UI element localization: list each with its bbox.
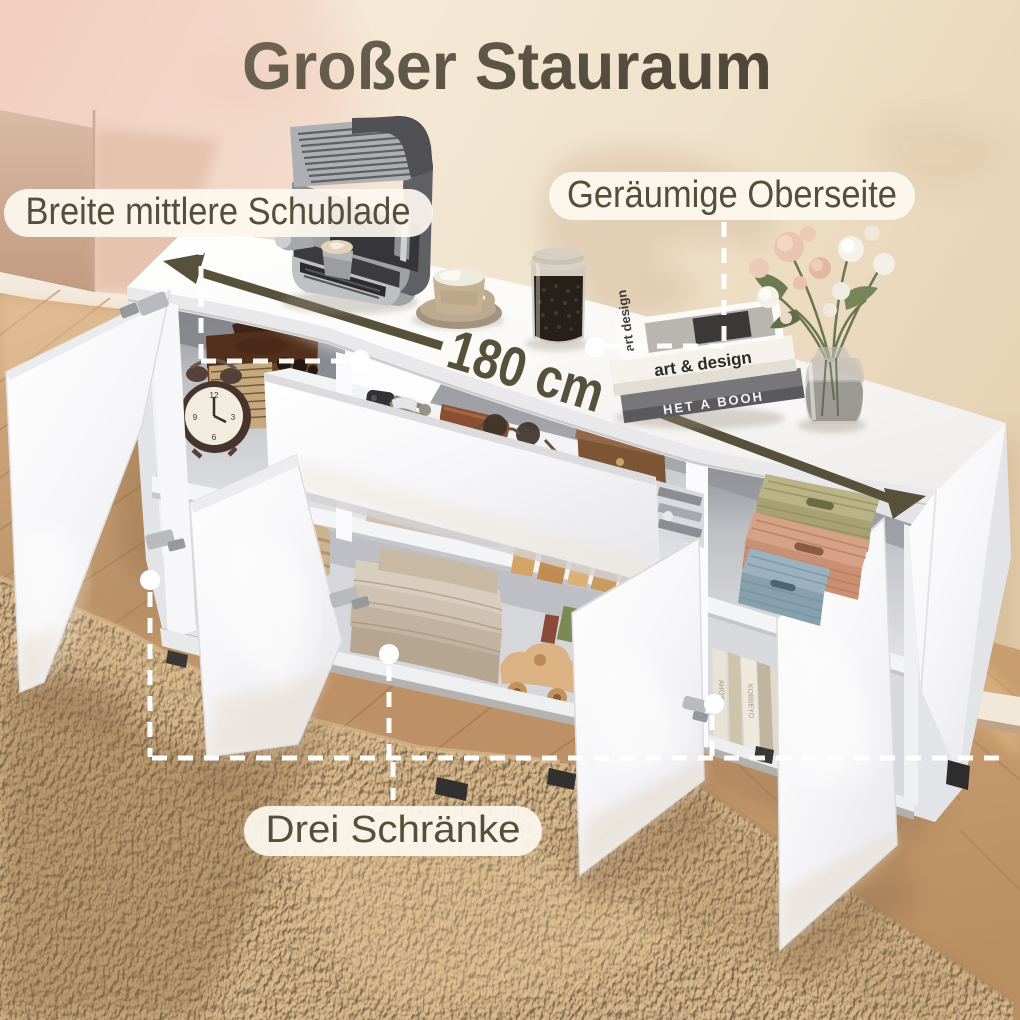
svg-text:3: 3 (231, 413, 236, 422)
svg-text:Breite mittlere Schublade: Breite mittlere Schublade (26, 191, 411, 233)
svg-text:Großer Stauraum: Großer Stauraum (242, 29, 772, 104)
svg-text:6: 6 (212, 433, 217, 442)
svg-text:Geräumige Oberseite: Geräumige Oberseite (567, 174, 897, 216)
svg-text:9: 9 (193, 413, 198, 422)
svg-text:Drei Schränke: Drei Schränke (266, 809, 521, 851)
svg-text:KOBBEYO: KOBBEYO (746, 684, 754, 719)
